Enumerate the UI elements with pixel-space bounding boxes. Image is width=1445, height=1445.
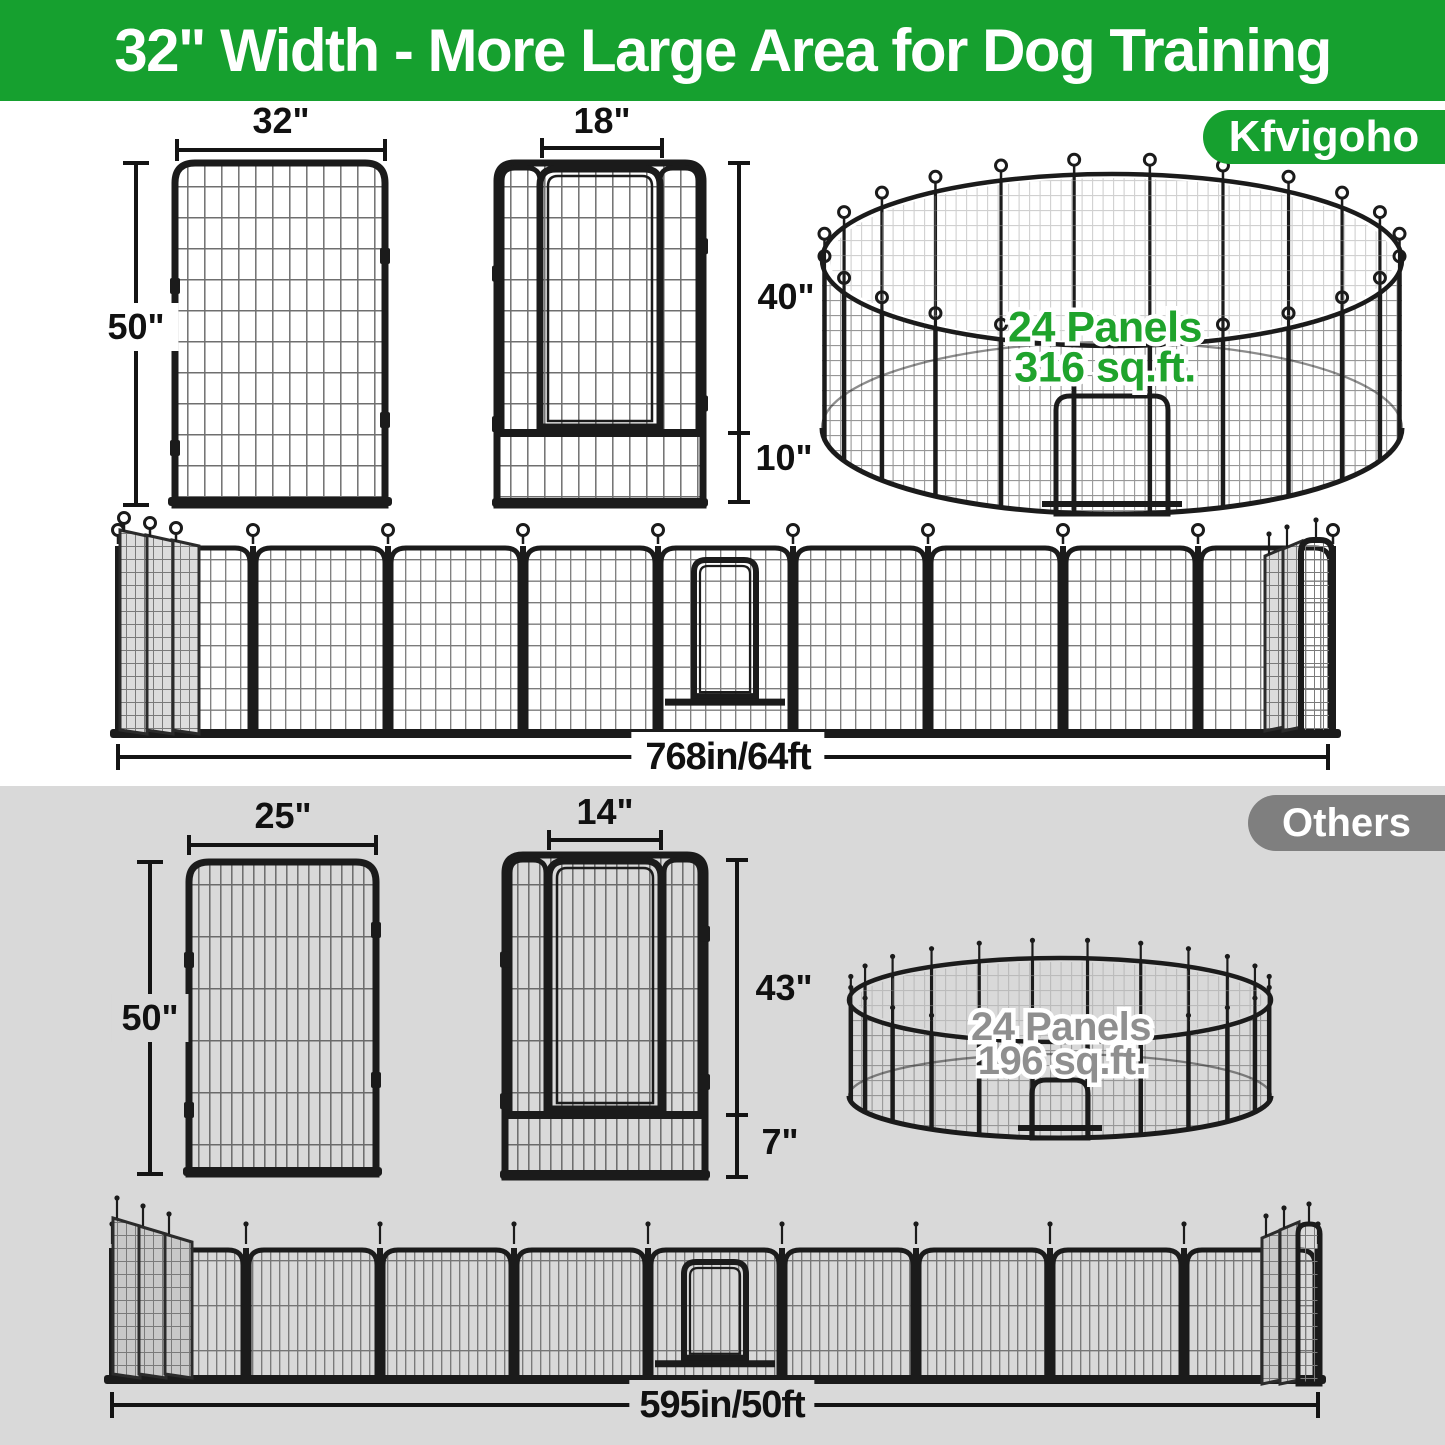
others-panel-width-label: 25" xyxy=(254,798,311,834)
kfvigoho-door-width-label: 18" xyxy=(573,103,630,139)
kfvigoho-door-bottom-label: 10" xyxy=(755,440,812,476)
others-door-bottom-label: 7" xyxy=(761,1124,798,1160)
header-title: 32" Width - More Large Area for Dog Trai… xyxy=(114,16,1330,85)
kfvigoho-door-diagram xyxy=(492,138,750,507)
header-banner: 32" Width - More Large Area for Dog Trai… xyxy=(0,0,1445,101)
others-pen-area-label: 196 sq.ft. xyxy=(978,1041,1146,1081)
others-label: Others xyxy=(1282,801,1411,846)
product-infographic: 32" Width - More Large Area for Dog Trai… xyxy=(0,0,1445,1445)
kfvigoho-door-height-label: 40" xyxy=(757,279,814,315)
others-door-diagram xyxy=(500,830,748,1179)
kfvigoho-pen-area-label: 316 sq.ft. xyxy=(1014,347,1195,390)
others-row-length-label: 595in/50ft xyxy=(629,1380,814,1430)
others-door-height-label: 43" xyxy=(755,970,812,1006)
others-badge: Others xyxy=(1248,795,1445,851)
others-door-width-label: 14" xyxy=(576,794,633,830)
kfvigoho-row-length-label: 768in/64ft xyxy=(631,732,824,782)
others-panel-height-label: 50" xyxy=(111,994,188,1042)
fence-diagrams xyxy=(0,0,1445,1445)
brand-name: Kfvigoho xyxy=(1229,112,1420,162)
kfvigoho-panel-width-label: 32" xyxy=(252,103,309,139)
kfvigoho-panel-height-label: 50" xyxy=(93,303,178,351)
brand-badge: Kfvigoho xyxy=(1203,110,1445,164)
